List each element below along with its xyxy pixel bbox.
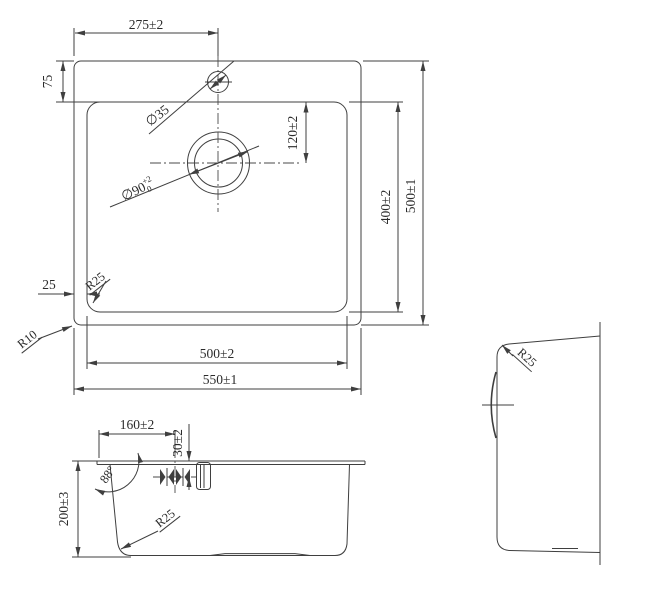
leader-side-corner-radius	[502, 345, 513, 356]
side-corner-radius-label-group: R25	[512, 344, 541, 372]
drawing-sheet: 275±2 75 ∅35 120±2 ∅90 +2 0 400±2 500±1 …	[0, 0, 661, 600]
side-body-profile	[497, 336, 600, 553]
top-view-outline	[74, 61, 361, 325]
drain-washer-stack-left	[160, 468, 174, 486]
bowl-depth-label: 200±3	[56, 492, 71, 527]
sink-technical-drawing: 275±2 75 ∅35 120±2 ∅90 +2 0 400±2 500±1 …	[0, 0, 661, 600]
drain-diameter-label-group: ∅90 +2 0	[118, 173, 157, 205]
bottom-radius-label-group: R25	[151, 505, 180, 532]
side-view-labels: R25	[512, 344, 541, 372]
wall-angle-label: 88°	[97, 464, 119, 486]
leader-arrow	[210, 82, 218, 89]
bowl-profile	[110, 465, 350, 556]
bottom-radius-label: R25	[153, 506, 178, 530]
side-view-dimension-lines	[502, 345, 513, 356]
drain-washer-stack-right	[176, 468, 190, 486]
bowl-length-label: 400±2	[378, 190, 393, 224]
leader-arrow	[219, 152, 249, 164]
leader-bottom-radius	[121, 531, 158, 549]
outer-length-label: 500±1	[403, 179, 418, 213]
sink-bowl-edge	[87, 102, 347, 312]
hole-diameter-label: ∅35	[143, 102, 172, 130]
bowl-radius-label-group: R25	[81, 268, 110, 295]
outer-width-label: 550±1	[203, 372, 237, 387]
side-corner-radius-label: R25	[515, 345, 540, 369]
rim-to-bowl-label: 75	[40, 75, 55, 89]
drain-drop-label: 30±2	[170, 429, 185, 457]
drain-position-label: 160±2	[120, 417, 154, 432]
leader-outer-radius	[38, 326, 72, 339]
washer-shape	[160, 469, 166, 485]
hole-offset-label: 275±2	[129, 17, 163, 32]
bowl-width-label: 500±2	[200, 346, 234, 361]
outer-radius-label-group: R10	[13, 326, 42, 353]
outer-radius-label: R10	[15, 327, 40, 351]
washer-shape	[176, 469, 182, 485]
sink-outer-rim	[74, 61, 361, 325]
washer-shape	[169, 469, 175, 485]
side-view-outline	[482, 322, 600, 565]
top-view-dimension-lines	[38, 28, 429, 395]
leader-hole-diameter	[149, 61, 234, 134]
leader-arrow	[189, 163, 219, 175]
drain-offset-label: 120±2	[285, 116, 300, 150]
top-view-centerlines	[150, 28, 302, 212]
rim-side-label: 25	[42, 277, 56, 292]
leader-arrow	[218, 75, 226, 82]
